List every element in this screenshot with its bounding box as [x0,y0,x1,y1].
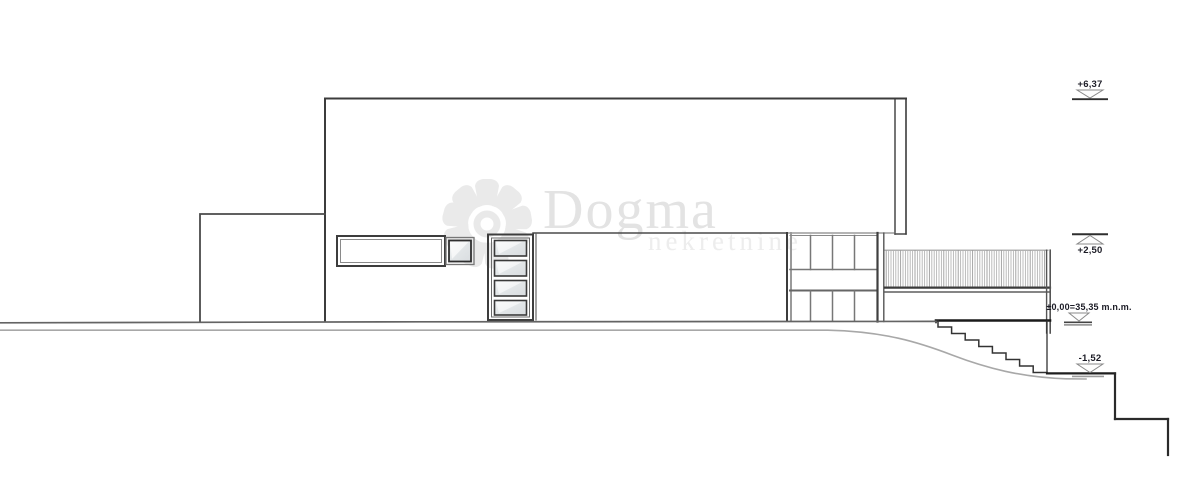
elevation-drawing: Dogma nekretnine [0,0,1200,490]
square-window [446,238,474,265]
level-label-terrace: +2,50 [1077,245,1102,256]
terrain-line-existing [0,330,1086,379]
level-label-basement: -1,52 [1079,353,1102,364]
terrain [0,321,1086,379]
stairs [936,321,1168,456]
level-marker-icon [1077,236,1103,245]
level-label-roof: +6,37 [1077,79,1102,90]
terrain-line-finished [0,321,936,322]
window-stack [488,235,533,321]
left-annex [200,214,325,322]
watermark-subtitle: nekretnine [648,226,802,256]
ribbon-window [337,236,445,266]
level-marker-icon [1069,313,1089,321]
level-markers: +6,37 +2,50 ±0,00=35,35 m.n.m. -1,52 [1046,79,1131,376]
level-marker-ground: ±0,00=35,35 m.n.m. [1046,302,1131,325]
curtain-wall-grid [790,233,884,322]
elevation-drawing-canvas: Dogma nekretnine [0,0,1200,490]
level-marker-terrace: +2,50 [1072,234,1108,256]
level-marker-icon [1077,364,1103,373]
building [0,99,1168,456]
watermark: Dogma nekretnine [440,179,802,271]
railing-hatch [886,251,1044,286]
level-label-ground: ±0,00=35,35 m.n.m. [1046,302,1131,312]
level-marker-icon [1077,90,1103,98]
stair-steps [938,321,1047,373]
level-marker-roof: +6,37 [1072,79,1108,99]
